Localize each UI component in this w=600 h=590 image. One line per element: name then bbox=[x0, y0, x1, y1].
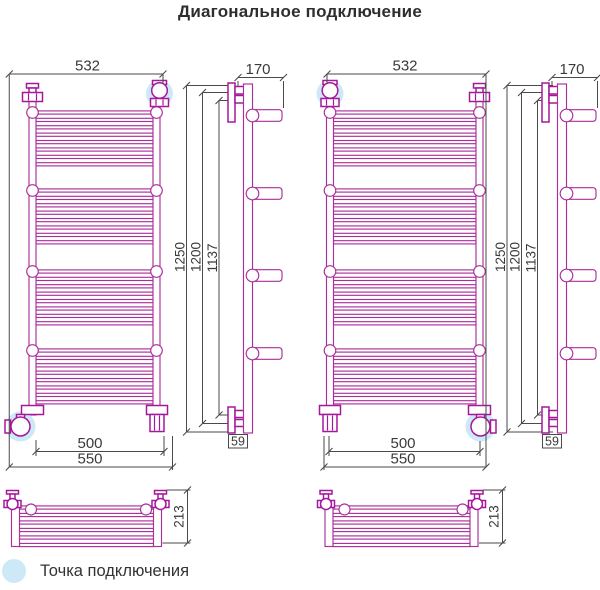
wall-bracket bbox=[474, 185, 486, 197]
dim-532-label: 532 bbox=[392, 58, 417, 75]
rung-tube bbox=[36, 155, 153, 158]
rung-tube bbox=[36, 241, 153, 244]
rung-tube bbox=[334, 155, 477, 158]
dim-1137-label: 1137 bbox=[524, 243, 539, 272]
rung-tube bbox=[36, 118, 153, 121]
rung-tube bbox=[334, 401, 477, 404]
bracket-joint bbox=[560, 109, 573, 122]
wall-bracket bbox=[151, 107, 163, 119]
bracket-joint bbox=[246, 269, 259, 282]
wall-flange-bottom bbox=[542, 407, 549, 433]
dim-1137-label: 1137 bbox=[205, 243, 220, 272]
rung-tube bbox=[334, 307, 477, 310]
rung-groups bbox=[334, 111, 477, 404]
rung-tube bbox=[36, 379, 153, 382]
wall-bracket bbox=[324, 107, 336, 119]
rung-tube bbox=[334, 277, 477, 280]
valve-knob bbox=[152, 83, 168, 99]
dim-500-label: 500 bbox=[390, 435, 415, 452]
dim-213-label: 213 bbox=[172, 505, 187, 528]
rung-tube bbox=[334, 292, 477, 295]
shelf-tube bbox=[333, 521, 470, 524]
rung-tube bbox=[36, 371, 153, 374]
rung-tube bbox=[36, 314, 153, 317]
dim-500-label: 500 bbox=[77, 435, 102, 452]
rung-tube bbox=[334, 111, 477, 114]
wall-bracket bbox=[27, 107, 39, 119]
rung-tube bbox=[334, 219, 477, 222]
union-body bbox=[150, 415, 164, 432]
rung-tube bbox=[36, 401, 153, 404]
rung-tube bbox=[36, 300, 153, 303]
valve-knob bbox=[11, 417, 30, 436]
rung-tube bbox=[36, 364, 153, 367]
rung-tube bbox=[334, 285, 477, 288]
wall-bracket bbox=[474, 345, 486, 357]
dim-59-label: 59 bbox=[545, 435, 559, 449]
valve-body-top-view bbox=[321, 499, 332, 510]
rung-tube bbox=[36, 322, 153, 325]
rung-tube bbox=[334, 379, 477, 382]
rung-tube bbox=[334, 204, 477, 207]
legend: Точка подключения bbox=[2, 559, 189, 583]
rung-tube bbox=[36, 163, 153, 166]
shelf-tube bbox=[333, 513, 470, 516]
rail-top-view bbox=[26, 504, 37, 515]
valve-body-top-view bbox=[155, 499, 166, 510]
bracket-joint bbox=[246, 109, 259, 122]
plan-view: 213 bbox=[318, 487, 507, 547]
valve-knob bbox=[322, 83, 338, 99]
bracket-joint bbox=[560, 269, 573, 282]
dim-1200-label: 1200 bbox=[508, 242, 523, 272]
valve-nut bbox=[151, 99, 169, 107]
rung-tube bbox=[334, 322, 477, 325]
rung-tube bbox=[36, 233, 153, 236]
dim-1200-label: 1200 bbox=[189, 242, 204, 272]
wall-bracket bbox=[27, 185, 39, 197]
valve-knob bbox=[471, 417, 490, 436]
shelf-tube bbox=[20, 521, 154, 524]
shelf-end-cap bbox=[325, 505, 333, 547]
wall-flange-bottom bbox=[228, 407, 235, 433]
rung-tube bbox=[334, 386, 477, 389]
rung-tube bbox=[334, 393, 477, 396]
shelf-end-cap bbox=[154, 505, 162, 547]
rail-top-view bbox=[141, 504, 152, 515]
rung-tube bbox=[36, 292, 153, 295]
bracket-joint bbox=[560, 347, 573, 360]
rung-tube bbox=[36, 189, 153, 192]
side-rail-pipe bbox=[558, 84, 567, 433]
valve-cap bbox=[491, 420, 497, 433]
diagram-canvas: Диагональное подключение 532500550125012… bbox=[0, 0, 600, 590]
bracket-joint bbox=[246, 347, 259, 360]
rung-tube bbox=[36, 226, 153, 229]
rung-groups bbox=[36, 111, 153, 404]
valve-nut bbox=[321, 99, 339, 107]
dim-213-label: 213 bbox=[487, 505, 502, 528]
rung-tube bbox=[334, 300, 477, 303]
vertical-rail bbox=[29, 97, 36, 415]
rung-tube bbox=[36, 386, 153, 389]
rung-tube bbox=[334, 226, 477, 229]
dim-550-label: 550 bbox=[390, 451, 415, 468]
shelf-tube bbox=[20, 543, 154, 546]
rung-tube bbox=[334, 126, 477, 129]
dim-170-label: 170 bbox=[559, 61, 584, 78]
vertical-rail bbox=[153, 97, 160, 415]
rung-tube bbox=[334, 196, 477, 199]
union-nut bbox=[147, 406, 168, 415]
rung-tube bbox=[36, 148, 153, 151]
rung-tube bbox=[334, 233, 477, 236]
valve-nut bbox=[22, 406, 44, 415]
rung-tube bbox=[36, 196, 153, 199]
dim-1250-label: 1250 bbox=[493, 242, 508, 272]
rung-tube bbox=[334, 349, 477, 352]
shelf-end-cap bbox=[12, 505, 20, 547]
wall-bracket bbox=[27, 345, 39, 357]
rung-tube bbox=[36, 211, 153, 214]
wall-bracket bbox=[474, 266, 486, 278]
connection-point-swatch bbox=[2, 559, 26, 583]
rung-tube bbox=[334, 356, 477, 359]
rail-top-view bbox=[339, 504, 350, 515]
rung-tube bbox=[36, 219, 153, 222]
rung-tube bbox=[334, 118, 477, 121]
dim-532-label: 532 bbox=[75, 58, 100, 75]
side-view bbox=[542, 83, 596, 433]
union-nut bbox=[320, 406, 341, 415]
valve-body-top-view bbox=[472, 499, 483, 510]
rung-tube bbox=[36, 111, 153, 114]
shelf-end-cap bbox=[470, 505, 478, 547]
dim-170-label: 170 bbox=[245, 61, 270, 78]
dim-59-label: 59 bbox=[231, 435, 245, 449]
rung-tube bbox=[36, 349, 153, 352]
shelf-tube bbox=[333, 536, 470, 539]
rung-tube bbox=[36, 126, 153, 129]
side-view bbox=[228, 83, 282, 433]
rung-tube bbox=[334, 241, 477, 244]
valve-body-top-view bbox=[7, 499, 18, 510]
rung-tube bbox=[334, 189, 477, 192]
wall-flange-top bbox=[228, 83, 235, 122]
rung-tube bbox=[36, 270, 153, 273]
plan-view: 213 bbox=[4, 487, 191, 547]
technical-drawing: 5325005501250120011371705921353250055012… bbox=[0, 0, 600, 590]
rung-tube bbox=[36, 141, 153, 144]
rung-tube bbox=[36, 277, 153, 280]
rung-tube bbox=[36, 307, 153, 310]
dim-550-label: 550 bbox=[77, 451, 102, 468]
rung-tube bbox=[334, 364, 477, 367]
wall-bracket bbox=[324, 345, 336, 357]
rung-tube bbox=[36, 285, 153, 288]
wall-bracket bbox=[151, 266, 163, 278]
side-rail-pipe bbox=[244, 84, 253, 433]
shelf-tube bbox=[333, 506, 470, 509]
wall-bracket bbox=[151, 185, 163, 197]
vertical-rail bbox=[327, 97, 334, 415]
wall-bracket bbox=[27, 266, 39, 278]
rung-tube bbox=[334, 133, 477, 136]
bracket-joint bbox=[246, 187, 259, 200]
bracket-joint bbox=[560, 187, 573, 200]
wall-bracket bbox=[151, 345, 163, 357]
rung-tube bbox=[36, 356, 153, 359]
wall-bracket bbox=[324, 185, 336, 197]
rung-tube bbox=[334, 148, 477, 151]
rung-tube bbox=[334, 314, 477, 317]
shelf-tube bbox=[20, 528, 154, 531]
rung-tube bbox=[334, 163, 477, 166]
drawing-right: 53250055012501200113717059213 bbox=[317, 58, 600, 547]
union-body bbox=[323, 415, 337, 432]
valve-nut bbox=[469, 406, 491, 415]
rung-tube bbox=[36, 393, 153, 396]
drawing-left: 53250055012501200113717059213 bbox=[4, 58, 287, 547]
rung-tube bbox=[334, 371, 477, 374]
shelf-tube bbox=[333, 528, 470, 531]
rung-tube bbox=[334, 141, 477, 144]
rung-tube bbox=[334, 211, 477, 214]
wall-bracket bbox=[324, 266, 336, 278]
shelf-tube bbox=[20, 513, 154, 516]
wall-flange-top bbox=[542, 83, 549, 122]
shelf-tube bbox=[20, 536, 154, 539]
wall-bracket bbox=[474, 107, 486, 119]
rung-tube bbox=[334, 270, 477, 273]
vertical-rail bbox=[476, 97, 483, 415]
rung-tube bbox=[36, 204, 153, 207]
union-nut bbox=[23, 93, 43, 102]
shelf-tube bbox=[333, 543, 470, 546]
rail-top-view bbox=[457, 504, 468, 515]
dim-1250-label: 1250 bbox=[173, 242, 188, 272]
shelf-tube bbox=[20, 506, 154, 509]
legend-label: Точка подключения bbox=[40, 562, 189, 581]
rung-tube bbox=[36, 133, 153, 136]
